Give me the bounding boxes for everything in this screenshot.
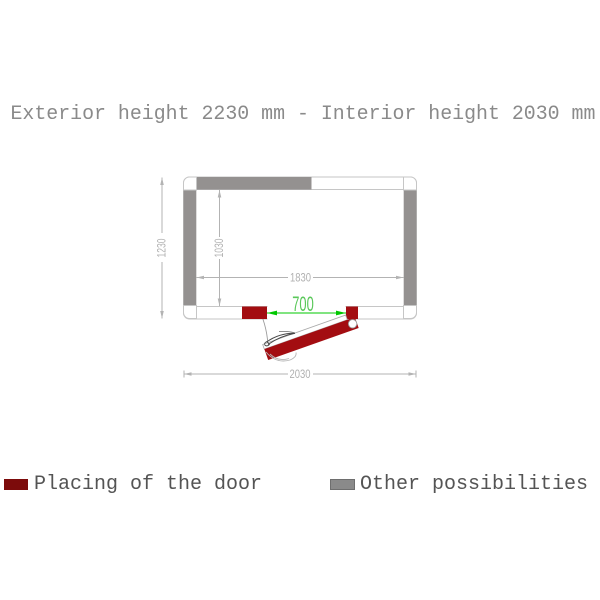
svg-text:1830: 1830 (290, 271, 311, 285)
svg-text:2030: 2030 (290, 367, 311, 381)
svg-text:1030: 1030 (212, 238, 226, 257)
svg-text:1230: 1230 (155, 238, 169, 257)
svg-text:700: 700 (292, 293, 314, 316)
